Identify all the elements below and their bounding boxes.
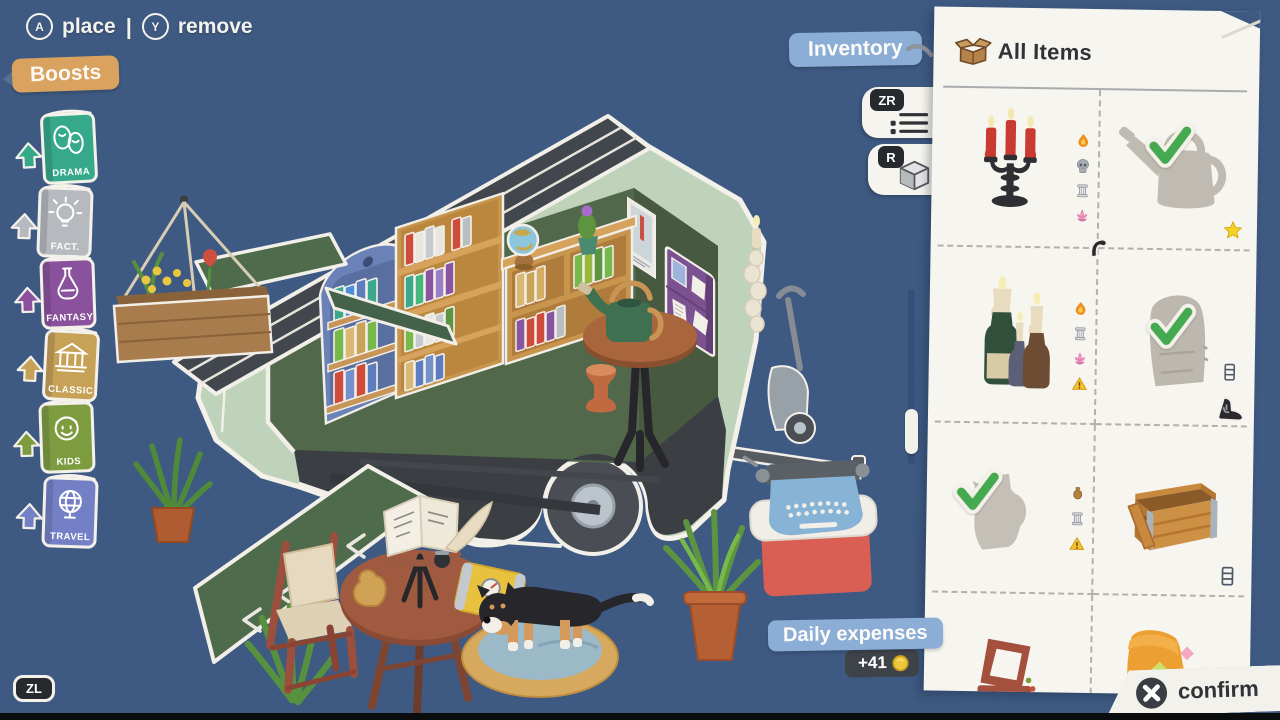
svg-text:FACT.: FACT. — [51, 241, 80, 253]
scene-fern-left[interactable] — [136, 440, 210, 542]
boost-book-fantasy[interactable]: FANTASY — [8, 253, 99, 334]
scene-dog[interactable] — [462, 582, 650, 697]
svg-text:KIDS: KIDS — [56, 456, 81, 468]
flame-icon — [1075, 133, 1091, 149]
svg-text:DRAMA: DRAMA — [52, 166, 90, 179]
x-button-icon — [1135, 677, 1167, 709]
panel-corner-cut — [1216, 9, 1260, 30]
boost-book-travel[interactable]: TRAVEL — [10, 471, 101, 552]
column-icon — [1069, 511, 1085, 527]
boost-book-drama[interactable]: DRAMA — [8, 108, 100, 190]
confirm-button[interactable]: confirm — [1105, 665, 1280, 717]
star-icon — [1223, 220, 1243, 240]
inventory-item-candelabra[interactable] — [938, 88, 1101, 250]
panel-clip-icon — [906, 42, 934, 62]
scene-scooter — [769, 288, 815, 443]
expense-badge: +41 — [845, 649, 919, 677]
crate-art — [1096, 447, 1244, 575]
item-badges — [1073, 90, 1092, 257]
scene-tall-bookcase[interactable] — [396, 193, 503, 398]
expense-value: +41 — [858, 653, 887, 674]
boost-book-classic[interactable]: CLASSIC — [10, 324, 102, 406]
y-button-icon[interactable]: Y — [142, 13, 169, 40]
vase-icon — [1070, 486, 1086, 502]
coin-icon — [892, 654, 909, 671]
item-badges — [1071, 249, 1090, 433]
inventory-item-watering-can[interactable] — [1099, 90, 1252, 251]
controls-separator: | — [126, 14, 132, 40]
box-icon — [954, 37, 991, 67]
boost-book-kids[interactable]: KIDS — [7, 397, 98, 478]
chair-art — [950, 607, 1058, 696]
scrollbar-thumb[interactable] — [905, 409, 918, 454]
warning-icon — [1069, 536, 1085, 552]
inventory-item-chair[interactable] — [930, 593, 1093, 696]
hook-icon — [1085, 234, 1112, 261]
item-badges — [1068, 425, 1087, 603]
placed-check-icon — [1141, 296, 1200, 355]
a-button-icon[interactable]: A — [26, 13, 53, 40]
drawers-icon — [1217, 566, 1237, 586]
inventory-button[interactable]: Inventory — [789, 31, 922, 67]
drawers-icon — [1221, 363, 1239, 381]
candelabra-art — [950, 90, 1070, 242]
zl-button[interactable]: ZL — [13, 675, 55, 702]
controls-hint: A place | Y remove — [26, 13, 253, 40]
item-grid — [931, 88, 1252, 696]
placed-check-icon — [1140, 115, 1199, 174]
inventory-item-crate[interactable] — [1093, 425, 1247, 597]
column-icon — [1072, 325, 1088, 341]
inventory-item-pitcher[interactable] — [932, 423, 1096, 596]
skull-icon — [1075, 158, 1091, 174]
panel-title: All Items — [997, 38, 1092, 65]
boot-icon — [1214, 392, 1248, 426]
column-icon — [1074, 183, 1090, 199]
warning-icon — [1071, 375, 1087, 391]
bottle-candles-art — [939, 257, 1067, 417]
svg-text:TRAVEL: TRAVEL — [50, 531, 91, 543]
inventory-item-wardrobe-door[interactable] — [1096, 249, 1250, 427]
inventory-panel: All Items — [924, 6, 1261, 695]
lotus-icon — [1072, 350, 1088, 366]
remove-label: remove — [178, 15, 253, 39]
placed-check-icon — [947, 461, 1006, 520]
flame-icon — [1073, 300, 1089, 316]
svg-text:FANTASY: FANTASY — [46, 312, 94, 325]
game-screen: A place | Y remove Boosts DRAMAFACT.FANT… — [0, 0, 1280, 720]
bottom-bar — [0, 713, 1280, 720]
zr-button-badge: ZR — [870, 89, 904, 111]
cube-icon — [898, 159, 931, 192]
place-label: place — [62, 15, 116, 39]
inventory-item-bottle-candles[interactable] — [935, 247, 1099, 426]
daily-expenses-label: Daily expenses — [768, 617, 943, 651]
boosts-label: Boosts — [11, 55, 119, 93]
boost-book-fact[interactable]: FACT. — [5, 181, 96, 262]
list-icon — [888, 111, 932, 135]
lotus-icon — [1074, 208, 1090, 224]
confirm-label: confirm — [1178, 676, 1260, 705]
scene-candle[interactable] — [752, 215, 761, 248]
